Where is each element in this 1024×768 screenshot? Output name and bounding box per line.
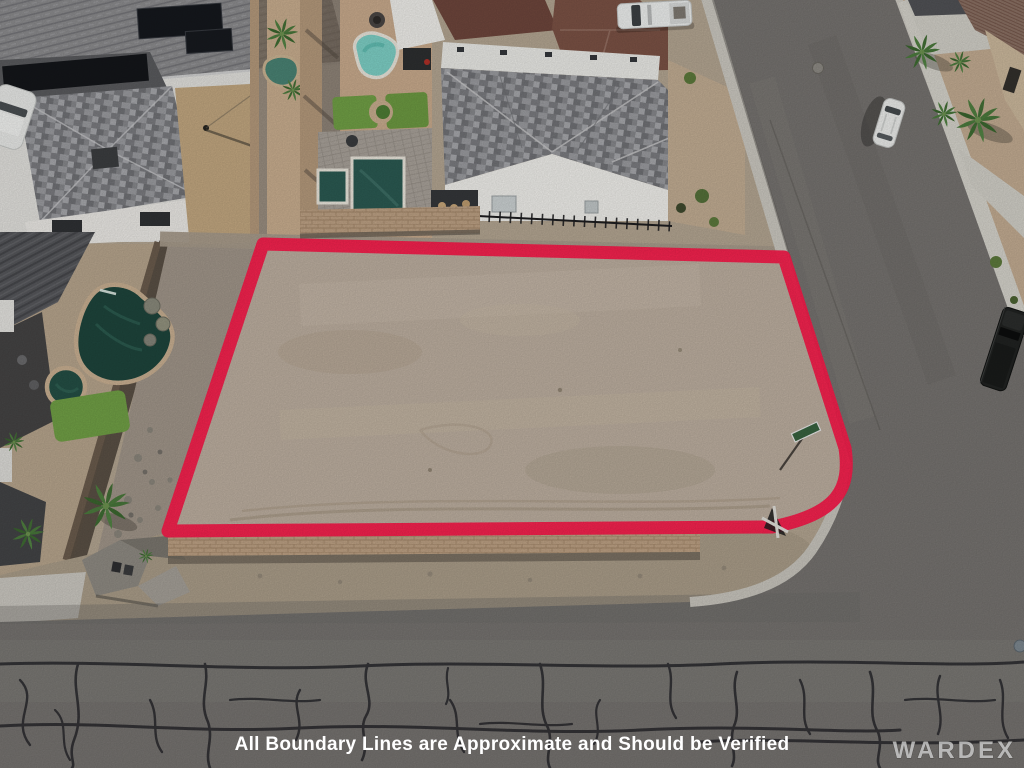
- disclaimer-text: All Boundary Lines are Approximate and S…: [235, 734, 790, 755]
- aerial-photo: All Boundary Lines are Approximate and S…: [0, 0, 1024, 768]
- aerial-photo-canvas: All Boundary Lines are Approximate and S…: [0, 0, 1024, 768]
- wardex-watermark: WARDEX: [893, 737, 1016, 764]
- photo-grain: [0, 0, 1024, 768]
